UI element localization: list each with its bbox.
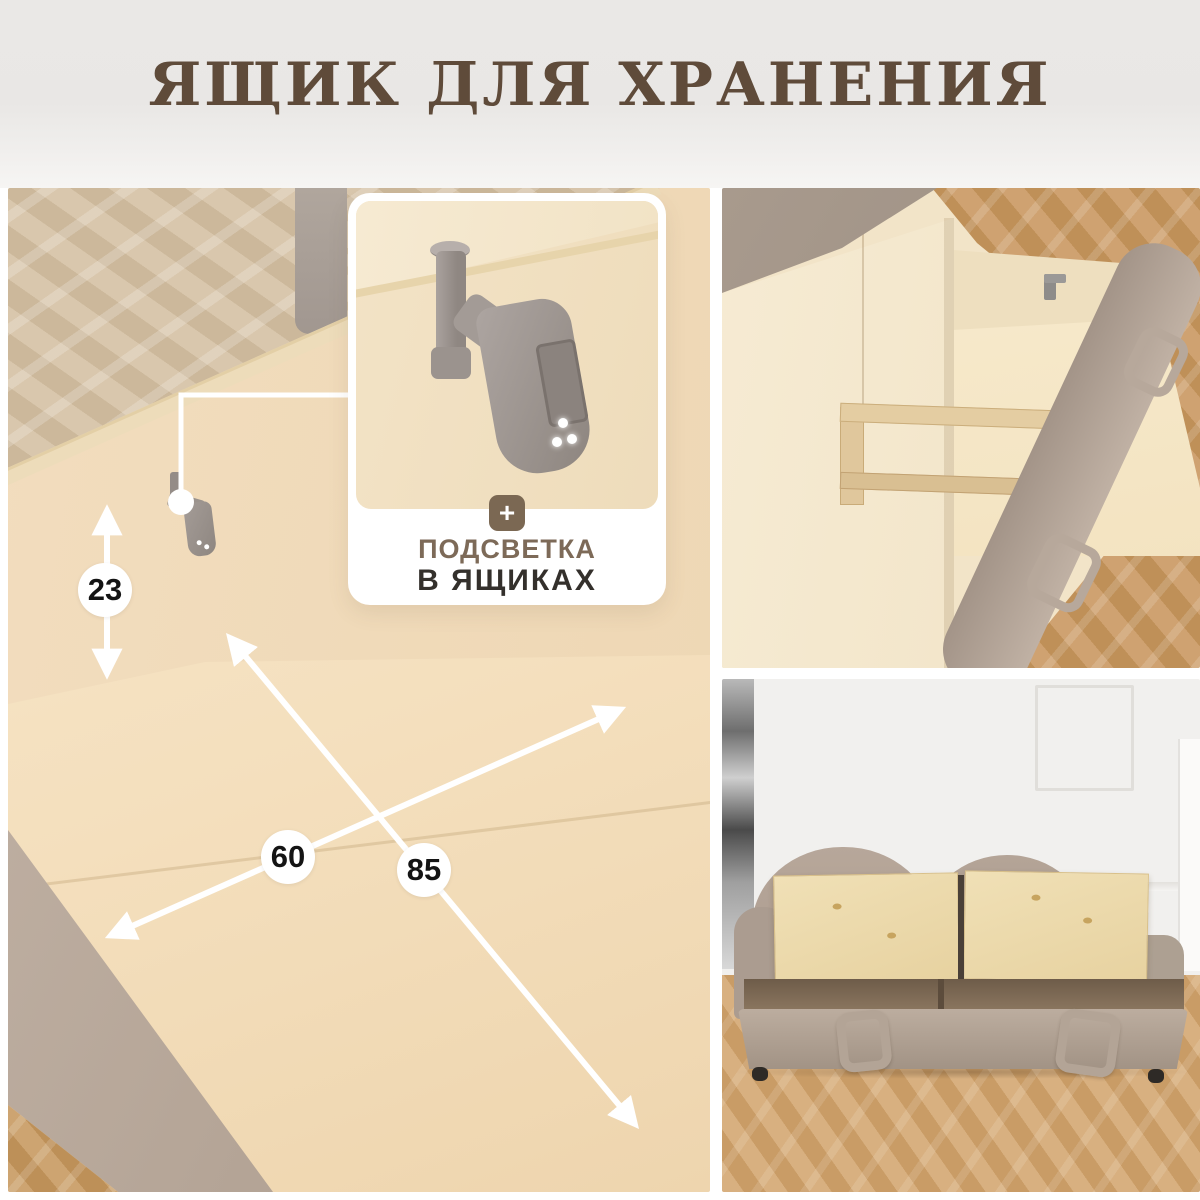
feature-callout: + ПОДСВЕТКА В ЯЩИКАХ	[348, 193, 666, 605]
hinge-collar	[431, 347, 471, 379]
white-cabinet-edge	[1178, 739, 1200, 971]
metal-bracket-arm	[1044, 274, 1066, 283]
dimension-width-value: 60	[271, 839, 305, 875]
dimension-depth-value: 85	[407, 852, 441, 888]
header: ЯЩИК ДЛЯ ХРАНЕНИЯ	[0, 0, 1200, 188]
caster-wheel	[1148, 1069, 1164, 1083]
dimension-depth-badge: 85	[397, 843, 451, 897]
page-title: ЯЩИК ДЛЯ ХРАНЕНИЯ	[148, 50, 1051, 120]
photo-storage-box-side	[722, 188, 1200, 668]
photo-sofa-open-storage	[722, 679, 1200, 1192]
led-dot	[567, 434, 577, 444]
wall-panel-molding-upper	[1035, 685, 1134, 791]
plus-icon: +	[489, 495, 525, 531]
wood-knot	[833, 903, 842, 909]
callout-feature-line1: ПОДСВЕТКА	[348, 534, 666, 565]
width-arrow	[112, 710, 619, 935]
callout-anchor-dot	[168, 489, 194, 515]
callout-leader-line	[181, 395, 348, 502]
wood-knot	[1031, 895, 1040, 901]
fabric-loop-handle	[1054, 1007, 1122, 1079]
hinge-light-closeup-photo	[356, 201, 658, 509]
lid-gap	[958, 875, 964, 979]
wood-knot	[1083, 917, 1092, 923]
callout-feature-line2: В ЯЩИКАХ	[348, 564, 666, 598]
fabric-loop-handle	[835, 1008, 893, 1073]
dimension-width-badge: 60	[261, 830, 315, 884]
panel-seam	[862, 224, 864, 414]
plus-glyph: +	[499, 495, 515, 531]
product-infographic: ЯЩИК ДЛЯ ХРАНЕНИЯ	[0, 0, 1200, 1200]
wood-knot	[887, 932, 896, 938]
dimension-height-value: 23	[88, 572, 122, 608]
upholstered-box-front	[738, 1009, 1188, 1069]
panel-corner-edge	[944, 218, 954, 668]
led-dot	[558, 418, 568, 428]
storage-box-divider	[938, 979, 944, 1013]
photo-drawer-interior: 23 60 85 +	[8, 188, 710, 1192]
caster-wheel	[752, 1067, 768, 1081]
dimension-height-badge: 23	[78, 563, 132, 617]
led-dot	[552, 437, 562, 447]
storage-box-opening	[744, 979, 1184, 1013]
storage-lid-left	[773, 872, 960, 983]
storage-lid-right	[963, 870, 1149, 982]
